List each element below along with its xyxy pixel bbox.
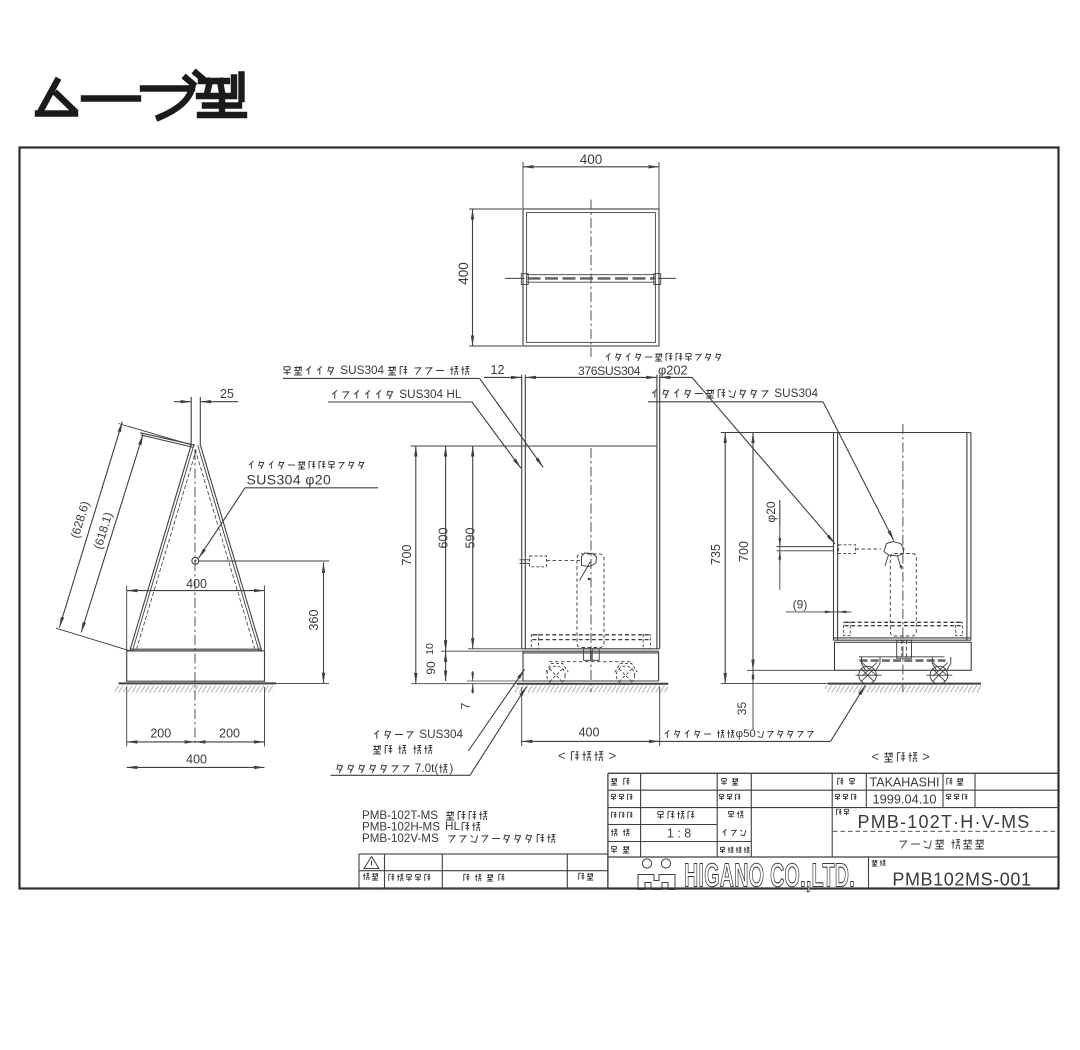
svg-text:400: 400 [186,753,207,767]
svg-text:12: 12 [491,363,505,377]
svg-text:600: 600 [437,528,451,549]
svg-text:400: 400 [580,152,603,167]
svg-text:10: 10 [424,643,436,655]
svg-text:1 : 8: 1 : 8 [667,827,691,841]
svg-text:25: 25 [220,387,234,401]
svg-text:700: 700 [737,541,751,562]
svg-text:400: 400 [186,577,207,591]
svg-text:700: 700 [400,545,414,566]
svg-text:PMB102MS-001: PMB102MS-001 [892,870,1031,890]
svg-text:400: 400 [579,726,600,740]
svg-text:1999.04.10: 1999.04.10 [872,792,936,807]
svg-text:376SUS304: 376SUS304 [578,364,641,378]
svg-text:PMB-102T·H·V-MS: PMB-102T·H·V-MS [857,812,1030,832]
svg-text:φ20: φ20 [764,501,778,522]
svg-text:HIGANO CO.,LTD.: HIGANO CO.,LTD. [684,857,855,894]
svg-text:(9): (9) [793,598,808,612]
svg-text:90: 90 [424,661,438,675]
svg-text:7: 7 [459,702,473,709]
svg-text:φ202: φ202 [658,363,688,378]
svg-text:(618.1): (618.1) [91,510,116,550]
svg-text:SUS304 φ20: SUS304 φ20 [247,472,332,488]
svg-text:TAKAHASHI: TAKAHASHI [870,776,940,790]
svg-text:35: 35 [735,702,749,716]
svg-text:400: 400 [456,262,471,285]
svg-text:360: 360 [307,610,321,631]
svg-text:(628.6): (628.6) [68,499,93,539]
svg-text:PMB-102V-MS: PMB-102V-MS [362,832,439,845]
svg-text:590: 590 [464,528,478,549]
svg-text:200: 200 [150,727,171,741]
svg-text:735: 735 [709,544,723,565]
svg-text:200: 200 [219,727,240,741]
